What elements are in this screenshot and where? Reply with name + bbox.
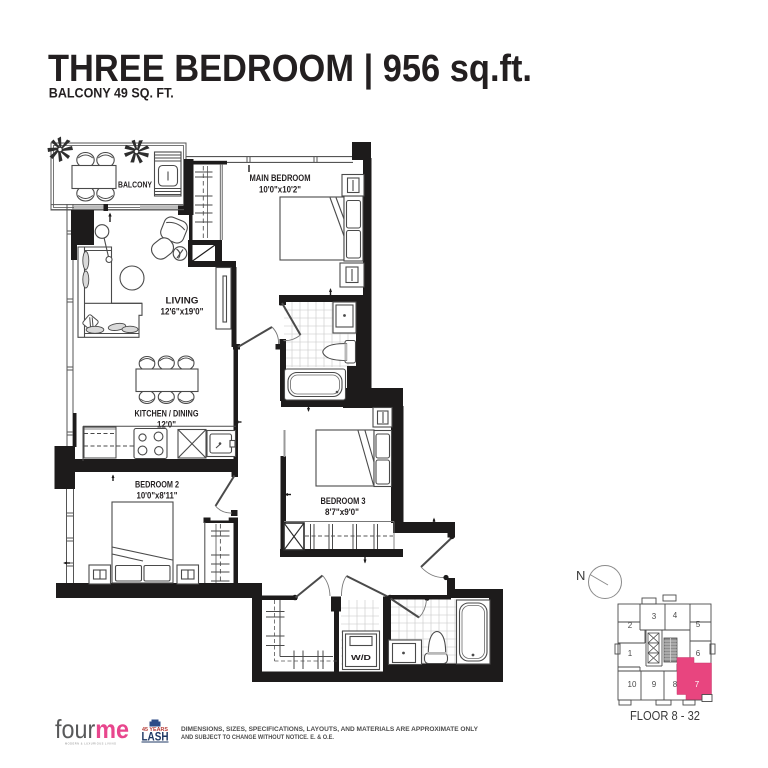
svg-text:2: 2 (628, 621, 633, 630)
svg-text:6: 6 (696, 649, 701, 658)
svg-text:DIMENSIONS, SIZES, SPECIFICATI: DIMENSIONS, SIZES, SPECIFICATIONS, LAYOU… (181, 726, 479, 733)
svg-text:LIVING: LIVING (166, 296, 199, 306)
svg-text:FLOOR 8 - 32: FLOOR 8 - 32 (630, 708, 700, 723)
svg-text:BEDROOM 3: BEDROOM 3 (321, 496, 366, 506)
svg-text:BALCONY: BALCONY (118, 180, 152, 190)
svg-text:1: 1 (628, 649, 633, 658)
svg-text:12'6"x19'0": 12'6"x19'0" (161, 307, 204, 317)
svg-text:10: 10 (628, 680, 637, 689)
svg-text:8'7"x9'0": 8'7"x9'0" (325, 507, 359, 517)
svg-text:W/D: W/D (351, 653, 372, 662)
svg-text:7: 7 (695, 680, 700, 689)
svg-text:8: 8 (673, 680, 678, 689)
svg-text:BALCONY 49 SQ. FT.: BALCONY 49 SQ. FT. (49, 85, 174, 101)
svg-text:5: 5 (696, 620, 701, 629)
svg-text:KITCHEN / DINING: KITCHEN / DINING (135, 409, 199, 419)
svg-text:4: 4 (673, 611, 678, 620)
svg-text:9: 9 (652, 680, 657, 689)
svg-text:BEDROOM 2: BEDROOM 2 (135, 480, 179, 490)
svg-text:10'0"x8'11": 10'0"x8'11" (137, 491, 178, 501)
svg-text:fourme: fourme (55, 714, 129, 744)
svg-text:MODERN & LUXURIOUS LIVING: MODERN & LUXURIOUS LIVING (65, 742, 117, 746)
svg-text:3: 3 (652, 612, 657, 621)
svg-text:AND SUBJECT TO CHANGE WITHOUT: AND SUBJECT TO CHANGE WITHOUT NOTICE. E.… (181, 734, 334, 741)
svg-text:10'0"x10'2": 10'0"x10'2" (259, 185, 301, 195)
svg-text:MAIN BEDROOM: MAIN BEDROOM (250, 173, 311, 183)
svg-text:N: N (576, 568, 585, 583)
